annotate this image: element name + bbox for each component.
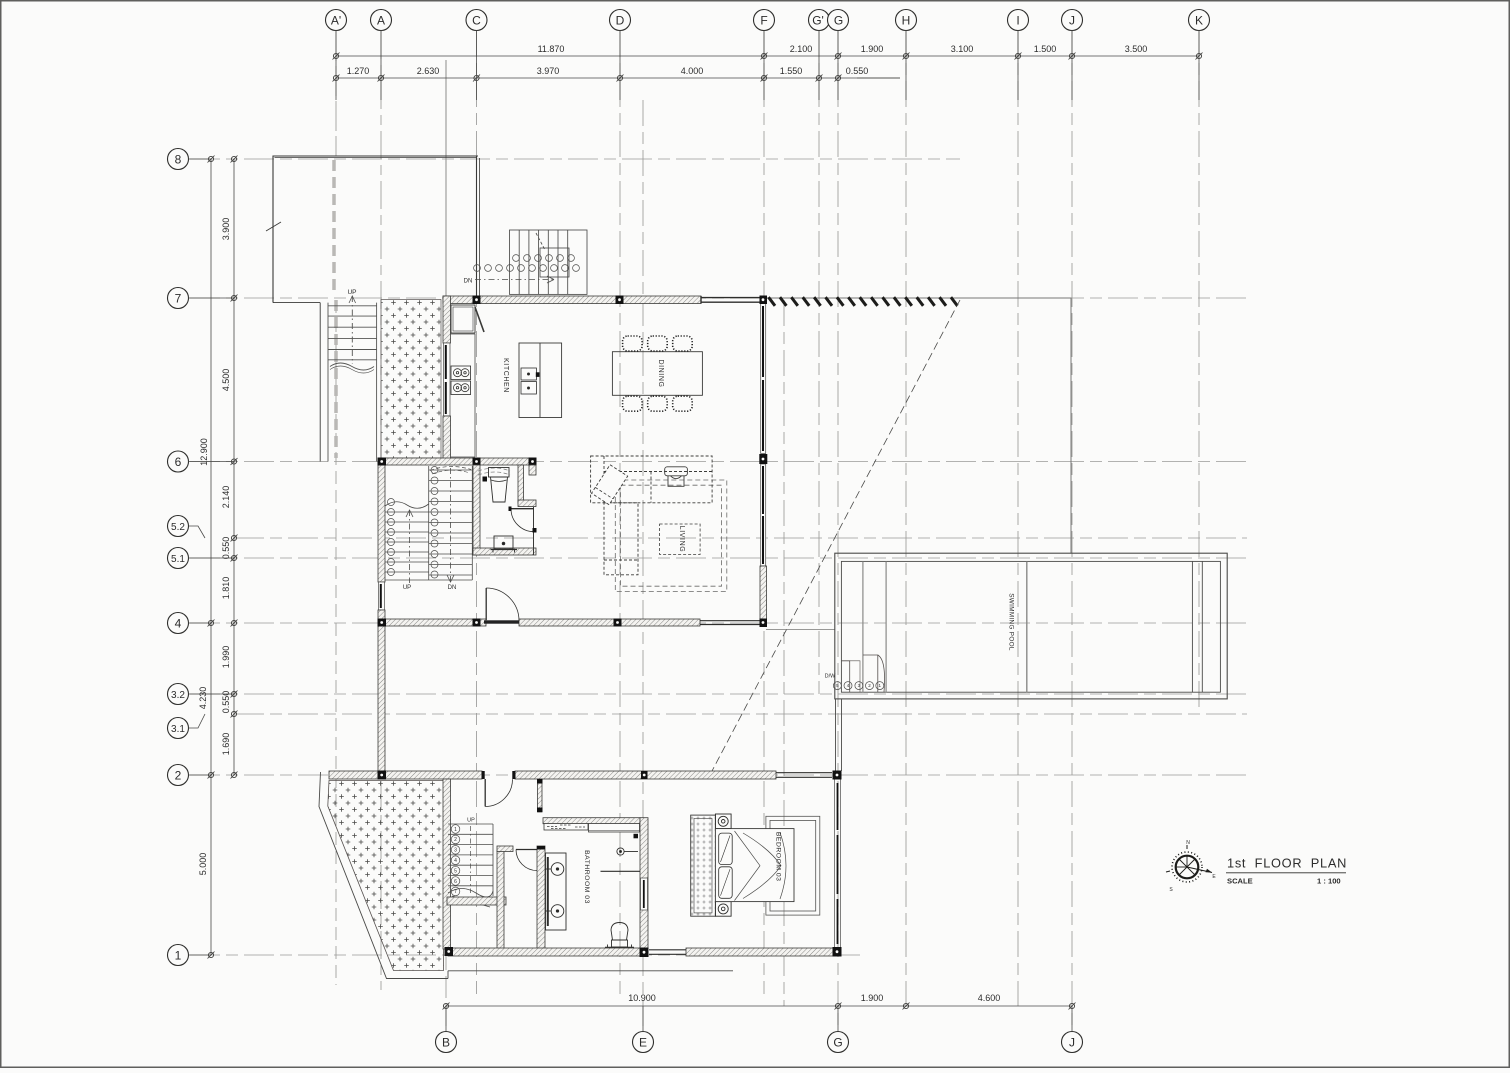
svg-text:D: D xyxy=(616,14,625,28)
svg-text:5.000: 5.000 xyxy=(198,853,208,876)
svg-text:1.900: 1.900 xyxy=(861,993,884,1003)
svg-text:4: 4 xyxy=(175,617,182,631)
svg-text:J: J xyxy=(1069,14,1075,28)
svg-text:11.870: 11.870 xyxy=(538,44,565,54)
svg-text:8: 8 xyxy=(175,153,182,167)
svg-text:SCALE: SCALE xyxy=(1227,877,1253,886)
svg-text:1 : 100: 1 : 100 xyxy=(1317,877,1341,886)
svg-text:4.600: 4.600 xyxy=(978,993,1001,1003)
svg-text:3.100: 3.100 xyxy=(951,44,974,54)
svg-text:1st FLOOR PLAN: 1st FLOOR PLAN xyxy=(1227,856,1347,871)
svg-text:BATHROOM 03: BATHROOM 03 xyxy=(583,850,590,904)
svg-text:1.690: 1.690 xyxy=(221,733,231,756)
svg-text:A': A' xyxy=(331,14,341,28)
svg-text:0.550: 0.550 xyxy=(221,537,231,560)
svg-text:4.500: 4.500 xyxy=(221,369,231,392)
svg-text:3.500: 3.500 xyxy=(1125,44,1148,54)
svg-text:1: 1 xyxy=(454,827,457,833)
svg-text:A: A xyxy=(377,14,385,28)
svg-text:LIVING: LIVING xyxy=(678,526,685,553)
svg-text:6: 6 xyxy=(454,879,457,885)
svg-text:2: 2 xyxy=(175,769,182,783)
svg-text:G: G xyxy=(834,14,843,28)
svg-text:3.900: 3.900 xyxy=(221,218,231,241)
svg-text:F: F xyxy=(760,14,767,28)
svg-text:1.270: 1.270 xyxy=(347,66,370,76)
svg-text:2: 2 xyxy=(454,837,457,843)
svg-text:E: E xyxy=(639,1036,647,1050)
svg-text:3.970: 3.970 xyxy=(537,66,560,76)
svg-text:5.1: 5.1 xyxy=(171,554,185,565)
svg-text:G: G xyxy=(833,1036,842,1050)
svg-text:3.1: 3.1 xyxy=(171,724,185,735)
svg-text:10.900: 10.900 xyxy=(628,993,656,1003)
svg-text:SWIMMING POOL: SWIMMING POOL xyxy=(1008,593,1015,651)
svg-text:5.2: 5.2 xyxy=(171,522,185,533)
svg-text:3.2: 3.2 xyxy=(171,690,185,701)
svg-text:6: 6 xyxy=(175,455,182,469)
svg-text:H: H xyxy=(902,14,911,28)
svg-text:1.900: 1.900 xyxy=(861,44,884,54)
svg-text:D/W: D/W xyxy=(825,674,837,680)
svg-text:K: K xyxy=(1195,14,1203,28)
svg-text:1.550: 1.550 xyxy=(780,66,803,76)
svg-text:5: 5 xyxy=(454,868,457,874)
svg-text:UP: UP xyxy=(403,585,411,591)
svg-text:4.230: 4.230 xyxy=(198,687,208,710)
svg-text:UP: UP xyxy=(467,818,475,824)
svg-text:3: 3 xyxy=(454,848,457,854)
svg-text:DN: DN xyxy=(464,279,473,285)
svg-text:C: C xyxy=(472,14,481,28)
svg-text:1.810: 1.810 xyxy=(221,577,231,600)
svg-text:G': G' xyxy=(812,14,824,28)
svg-text:2.140: 2.140 xyxy=(221,486,231,509)
svg-text:DINING: DINING xyxy=(657,359,664,387)
svg-text:1: 1 xyxy=(175,949,182,963)
svg-text:B: B xyxy=(442,1036,450,1050)
svg-text:2.630: 2.630 xyxy=(417,66,440,76)
svg-text:4.000: 4.000 xyxy=(681,66,704,76)
svg-text:UP: UP xyxy=(347,289,356,296)
svg-text:1.500: 1.500 xyxy=(1034,44,1057,54)
svg-text:J: J xyxy=(1069,1036,1075,1050)
svg-text:1.990: 1.990 xyxy=(221,646,231,669)
svg-text:N: N xyxy=(1186,840,1190,846)
svg-text:4: 4 xyxy=(454,858,457,864)
svg-text:I: I xyxy=(1016,14,1019,28)
svg-text:2.100: 2.100 xyxy=(790,44,813,54)
svg-text:7: 7 xyxy=(175,292,182,306)
svg-text:DN: DN xyxy=(448,585,457,591)
svg-text:BEDROOM 03: BEDROOM 03 xyxy=(775,832,782,882)
svg-text:KITCHEN: KITCHEN xyxy=(502,358,509,393)
svg-text:7: 7 xyxy=(454,889,457,895)
svg-text:0.550: 0.550 xyxy=(846,66,869,76)
